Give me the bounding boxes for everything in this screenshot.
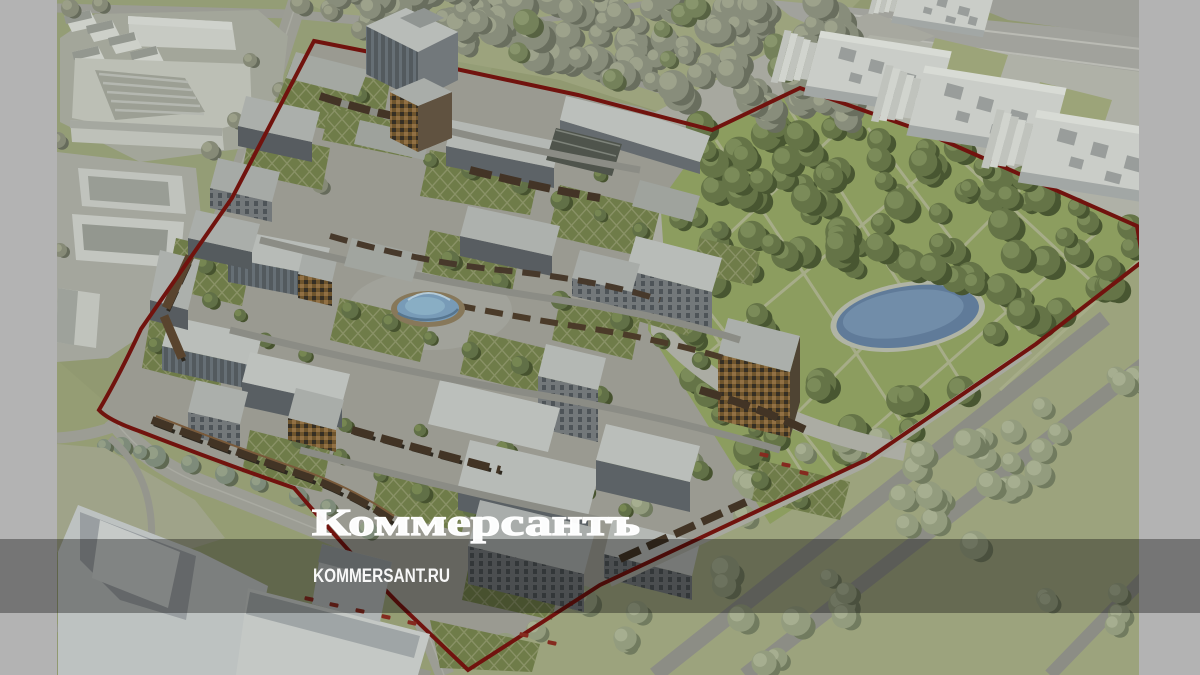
svg-text:Коммерсантъ: Коммерсантъ xyxy=(312,502,640,544)
svg-text:KOMMERSANT.RU: KOMMERSANT.RU xyxy=(313,566,450,587)
